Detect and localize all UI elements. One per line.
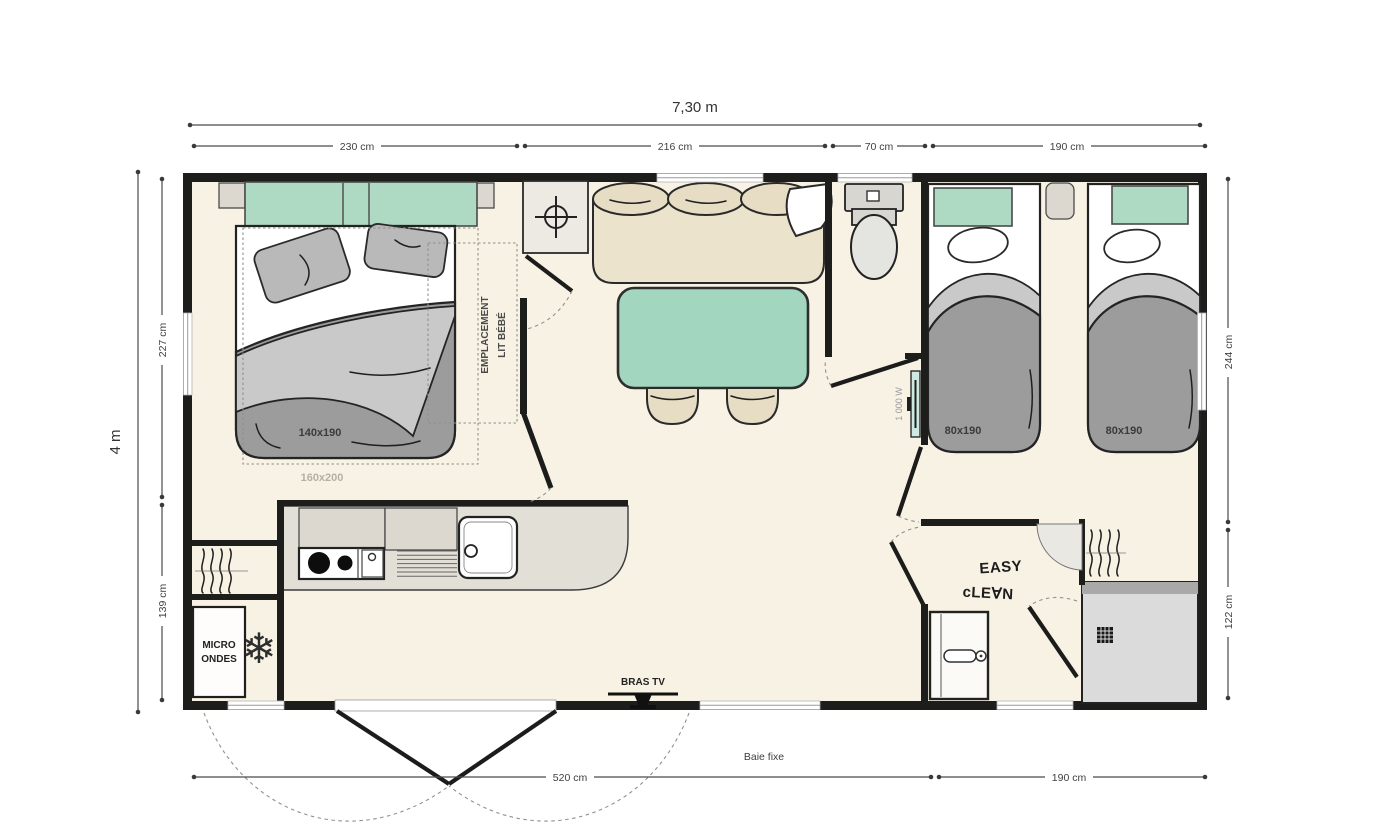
- bedside-shelf-left: [219, 183, 245, 208]
- tv-arm-label: BRAS TV: [621, 677, 665, 688]
- dim-520: 520 cm: [553, 772, 588, 784]
- easyclean-logo-1: EASY: [979, 558, 1023, 578]
- snowflake-icon: ❄: [241, 625, 276, 672]
- dimension-top-overall: 7,30 m: [188, 99, 1203, 127]
- nightstand: [1046, 183, 1074, 219]
- microwave: [193, 607, 245, 697]
- tech-closet-wall: [188, 540, 283, 546]
- dim-227: 227 cm: [157, 323, 169, 358]
- wall-master-living: [520, 298, 527, 414]
- flush-button-icon: [867, 191, 879, 201]
- sofa-cushion: [593, 183, 669, 215]
- tech-closet-wall: [277, 594, 284, 706]
- master-bed-option-label: 160x200: [301, 472, 344, 484]
- door-swing-arc: [449, 713, 689, 821]
- dim-216: 216 cm: [658, 141, 693, 153]
- kitchen-cabinet: [299, 508, 385, 548]
- knob-icon: [369, 554, 376, 561]
- dimension-left-inner: 227 cm 139 cm: [157, 177, 169, 703]
- twin-bed-2-size: 80x190: [1106, 425, 1143, 437]
- mobile-home-floorplan: 140x190 160x200 EMPLACEMENT LIT BÉBÉ: [0, 0, 1393, 840]
- microwave-label-2: ONDES: [201, 654, 237, 665]
- dining-table: [618, 288, 808, 388]
- microwave-label-1: MICRO: [202, 640, 236, 651]
- entrance-opening: [335, 700, 556, 711]
- entrance-door-leaf: [337, 711, 449, 784]
- shower-threshold: [1082, 582, 1198, 594]
- kitchen-cabinet: [385, 508, 457, 550]
- drainer-icon: [397, 551, 457, 576]
- dim-139: 139 cm: [157, 584, 169, 619]
- baby-cot-label-2: LIT BÉBÉ: [495, 312, 508, 358]
- dimension-bottom: 520 cm 190 cm Baie fixe: [192, 751, 1208, 784]
- master-bed-size-label: 140x190: [299, 427, 342, 439]
- dim-244: 244 cm: [1223, 335, 1235, 370]
- dim-190-bottom: 190 cm: [1052, 772, 1087, 784]
- faucet-icon: [465, 545, 477, 557]
- twin-headboard-2: [1112, 186, 1188, 224]
- master-headboard: [245, 182, 477, 226]
- burner-icon: [338, 556, 353, 571]
- door-swing-arc: [204, 713, 449, 821]
- floorplan-page: 140x190 160x200 EMPLACEMENT LIT BÉBÉ: [0, 0, 1393, 840]
- dim-230: 230 cm: [340, 141, 375, 153]
- dim-122: 122 cm: [1223, 595, 1235, 630]
- twin-headboard-1: [934, 188, 1012, 226]
- dimension-right-inner: 244 cm 122 cm: [1223, 177, 1235, 701]
- burner-icon: [308, 552, 330, 574]
- basin: [944, 650, 976, 662]
- dim-70: 70 cm: [865, 141, 894, 153]
- stool: [647, 388, 698, 424]
- stool: [727, 388, 778, 424]
- toilet-bowl: [851, 215, 897, 279]
- dimension-top-segments: 230 cm 216 cm 70 cm 190 cm: [192, 141, 1208, 153]
- faucet-dot: [980, 655, 983, 658]
- shower-left-wall: [921, 604, 928, 705]
- tech-closet-wall: [188, 594, 283, 600]
- wall-hall-kids: [921, 179, 928, 445]
- entrance-door-leaf: [449, 711, 556, 784]
- overall-width-label: 7,30 m: [672, 99, 718, 116]
- kitchen-side-wall: [277, 500, 284, 597]
- overall-height-label: 4 m: [107, 429, 124, 454]
- drain-icon: [1097, 627, 1113, 643]
- kitchen: [283, 506, 628, 590]
- kitchen-counter-back: [283, 500, 628, 506]
- sofa-cushion: [668, 183, 744, 215]
- dimension-left-outer: 4 m: [107, 170, 140, 715]
- wardrobe-unit: [523, 181, 588, 253]
- twin-bed-1-size: 80x190: [945, 425, 982, 437]
- baby-cot-label-1: EMPLACEMENT: [480, 296, 491, 373]
- heater-power-label: 1 000 W: [894, 387, 904, 421]
- dim-190-top: 190 cm: [1050, 141, 1085, 153]
- easyclean-logo-2: cLE∀N: [962, 584, 1014, 604]
- heater-valve: [907, 397, 911, 411]
- fixed-window-label: Baie fixe: [744, 751, 784, 763]
- wall-living-wc: [825, 179, 832, 357]
- shower-top-wall: [921, 519, 1039, 526]
